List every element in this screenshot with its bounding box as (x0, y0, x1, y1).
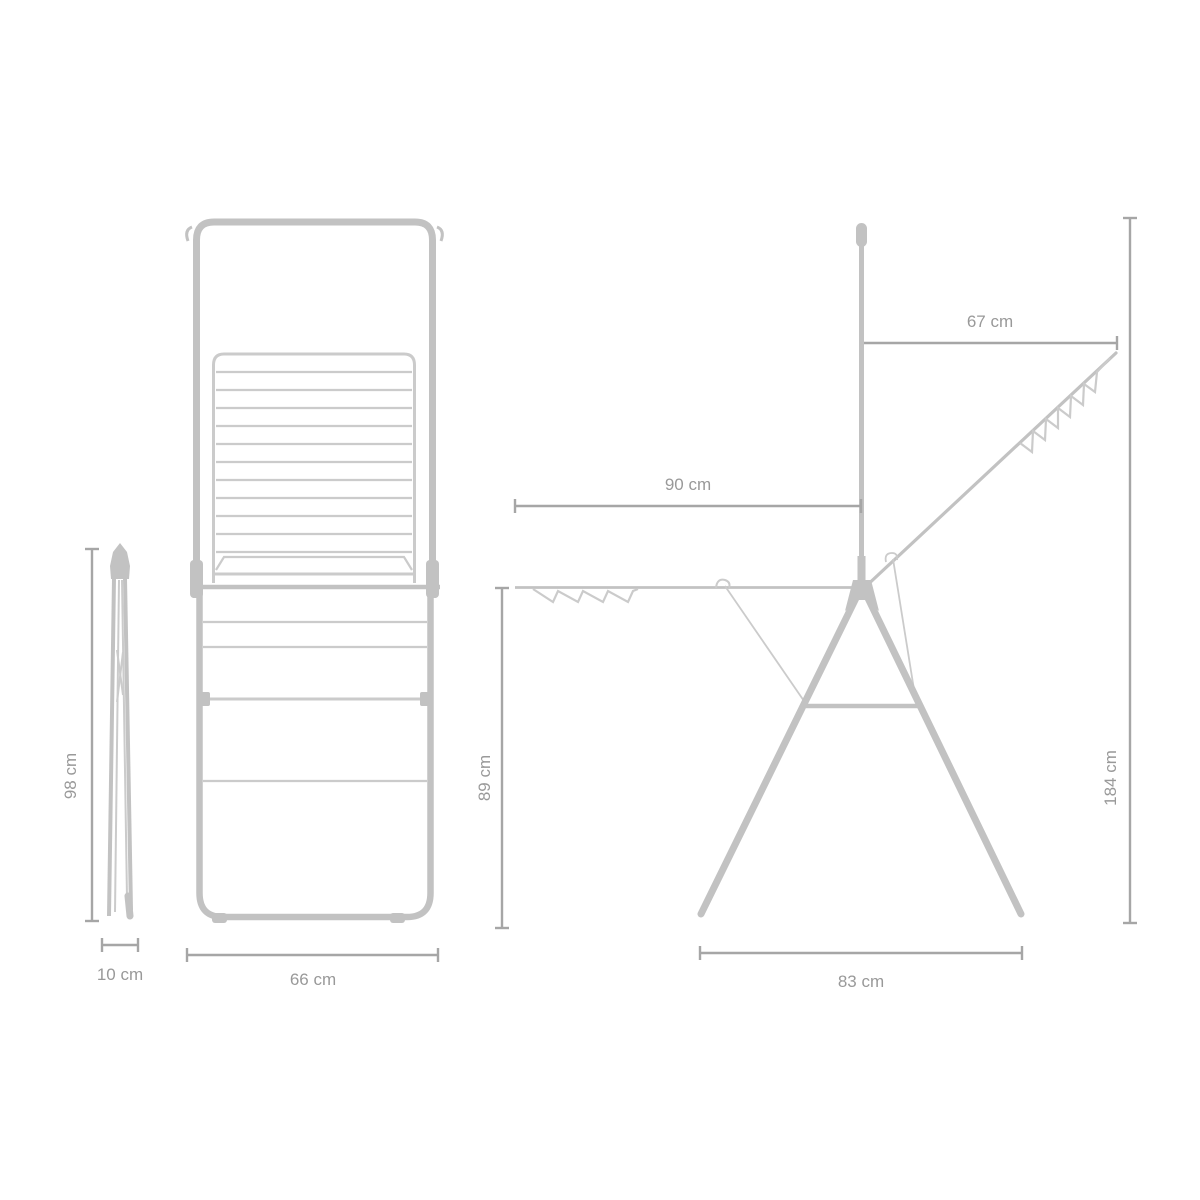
side-view: 90 cm 67 cm 89 cm 184 cm 83 cm (475, 218, 1137, 991)
left-wing-hanger-hooks (533, 589, 638, 602)
pole-cap (856, 223, 867, 247)
left-wing-support-wire (725, 586, 804, 701)
lower-body (190, 587, 440, 923)
hanging-frame (187, 222, 443, 598)
total-height-dimension: 184 cm (1101, 218, 1137, 923)
hinge-tab-left (199, 692, 210, 706)
front-width-dimension: 66 cm (187, 948, 438, 989)
folded-top-cap (110, 543, 130, 579)
foot-left (212, 913, 227, 923)
body-outline (200, 589, 431, 917)
folded-depth-label: 10 cm (97, 965, 143, 984)
folded-rail-left (109, 578, 114, 916)
foot-right (390, 913, 405, 923)
raised-wing-hanger-hooks (1020, 358, 1110, 452)
leg-right (865, 592, 1021, 914)
mesh-panel (213, 354, 415, 583)
front-width-label: 66 cm (290, 970, 336, 989)
frame-hook-left (187, 227, 192, 241)
folded-height-dimension: 98 cm (61, 549, 99, 921)
drying-height-dimension: 89 cm (475, 588, 509, 928)
folded-height-label: 98 cm (61, 753, 80, 799)
frame-hook-right (437, 227, 442, 241)
right-wing-length-label: 67 cm (967, 312, 1013, 331)
folded-rack-art (109, 543, 131, 916)
base-width-label: 83 cm (838, 972, 884, 991)
folded-rail-inner-1 (115, 580, 119, 912)
mesh-tray (216, 557, 412, 570)
drying-height-label: 89 cm (475, 755, 494, 801)
center-pole (856, 223, 867, 592)
raised-wing-arm (862, 353, 1116, 590)
u-frame (197, 222, 433, 598)
folded-depth-dimension: 10 cm (97, 938, 143, 984)
left-wing-length-dimension: 90 cm (515, 475, 861, 513)
total-height-label: 184 cm (1101, 750, 1120, 806)
base-width-dimension: 83 cm (700, 946, 1022, 991)
folded-view: 98 cm 10 cm (61, 543, 143, 984)
folded-foot (128, 896, 130, 916)
right-wing-length-dimension: 67 cm (864, 312, 1117, 350)
leg-left (701, 592, 859, 914)
a-frame-legs (701, 580, 1021, 914)
left-wing-length-label: 90 cm (665, 475, 711, 494)
mesh-border (214, 354, 415, 583)
front-view: 66 cm (187, 222, 443, 989)
raised-wing (862, 353, 1116, 702)
diagram-svg: 98 cm 10 cm (0, 0, 1200, 1200)
drying-rack-dimension-diagram: 98 cm 10 cm (0, 0, 1200, 1200)
hinge-tab-right (420, 692, 431, 706)
